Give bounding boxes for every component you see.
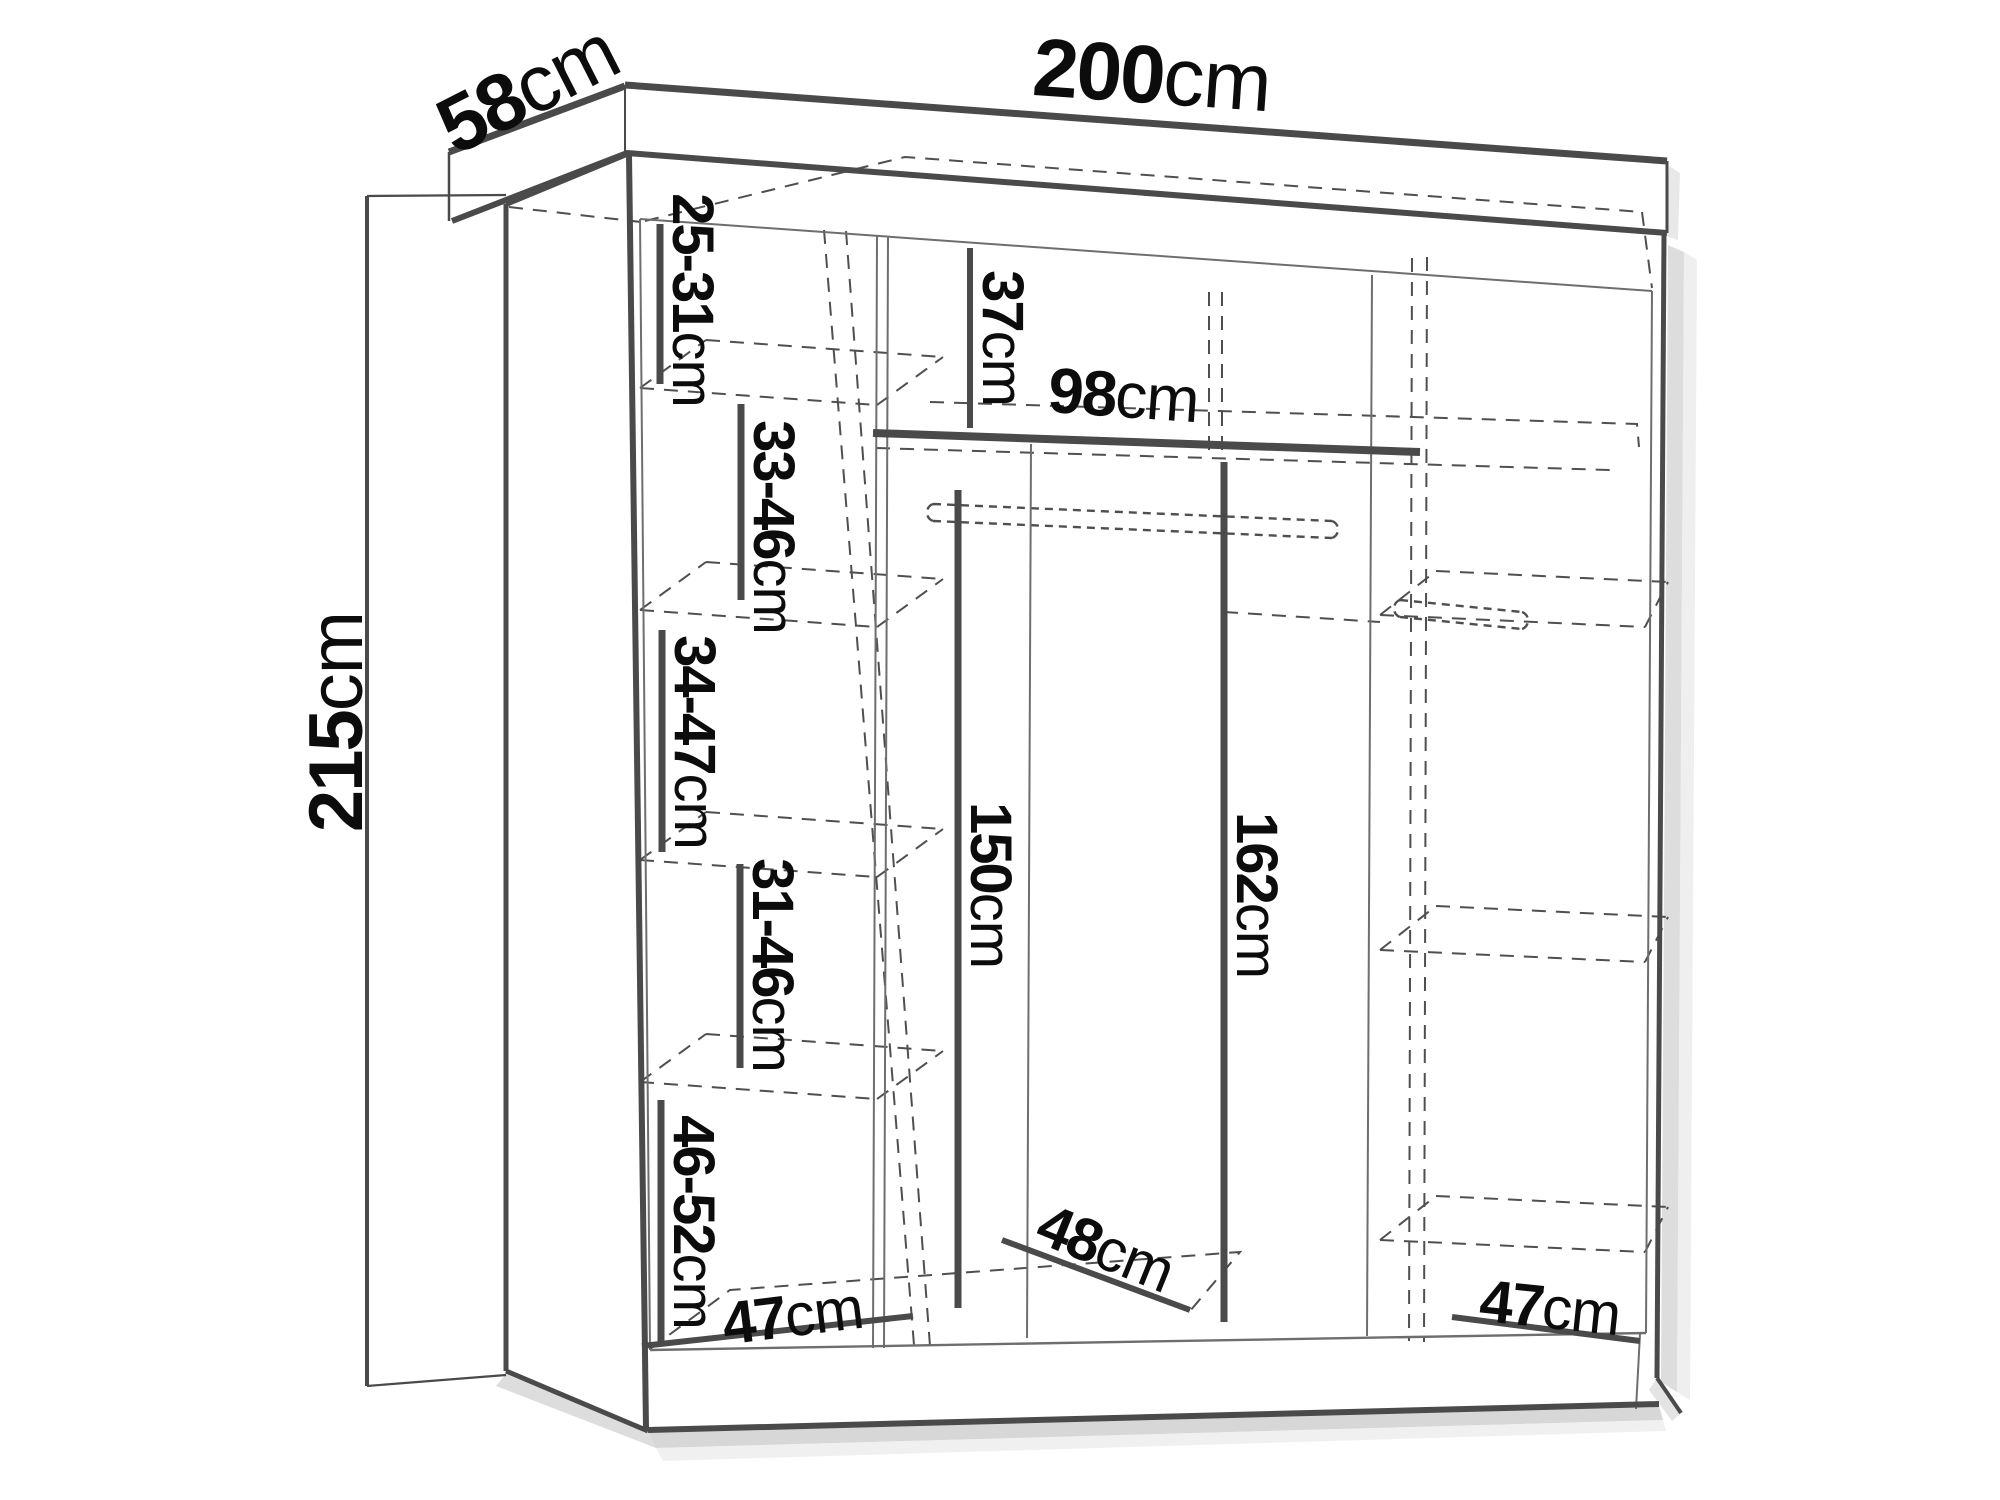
dim-left-gap-4-label: 31-46cm — [740, 858, 805, 1072]
dim-bottom-left-label: 47cm — [719, 1274, 867, 1358]
dim-hanging-middle-unit: cm — [958, 893, 1023, 968]
interior-top-edge — [640, 219, 1652, 291]
height-measure-ticks — [367, 195, 506, 1386]
dim-width-unit: cm — [1160, 31, 1273, 129]
dim-hanging-middle-label: 150cm — [958, 802, 1023, 968]
dim-left-gap-3-value: 34-47 — [662, 635, 727, 773]
dim-depth-label: 58cm — [423, 6, 632, 171]
right-shelf-extension-dashed — [1224, 612, 1380, 622]
dim-left-gap-1-value: 25-31 — [660, 193, 725, 332]
dim-shelf-width-value: 98 — [1046, 354, 1118, 431]
divider-right-front-edge — [1367, 275, 1372, 1336]
dim-hanging-right-value: 162 — [1224, 812, 1289, 903]
dim-left-gap-3-label: 34-47cm — [662, 635, 727, 849]
dim-left-gap-5-unit: cm — [661, 1254, 726, 1329]
dim-top-compartment-unit: cm — [970, 331, 1035, 406]
dim-width-label: 200cm — [1030, 22, 1274, 129]
dim-bottom-right-value: 47 — [1477, 1267, 1546, 1340]
hanging-rail-right-dashed — [1394, 600, 1528, 629]
dim-hanging-right-unit: cm — [1224, 903, 1289, 978]
middle-shelf-front-edge — [873, 433, 1420, 452]
hanging-rail-middle-dashed — [927, 504, 1338, 538]
dim-bottom-depth-label: 48cm — [1028, 1191, 1184, 1306]
dim-height-value: 215 — [294, 711, 379, 833]
right-divider-back-edges-dashed — [1409, 257, 1427, 1342]
dim-left-gap-2-label: 33-46cm — [741, 420, 806, 634]
side-panel-top-edge — [506, 153, 629, 204]
height-measure — [367, 195, 506, 1386]
dim-width-value: 200 — [1030, 22, 1167, 122]
dim-left-gap-4-unit: cm — [740, 997, 805, 1072]
middle-hidden-vertical-dashed — [1209, 292, 1222, 460]
dim-left-gap-2-unit: cm — [741, 559, 806, 634]
top-left-dashed-edge — [509, 207, 641, 222]
side-panel-bottom-edge — [506, 1371, 648, 1431]
interior-right-edge — [1646, 291, 1652, 1333]
wardrobe-diagram: 200cm 58cm 215cm 25-31cm 33-46cm 34-47cm… — [0, 0, 2000, 1500]
carcass-front-left-edge — [629, 155, 646, 1429]
dim-top-compartment-label: 37cm — [970, 270, 1035, 406]
dim-left-gap-5-value: 46-52 — [661, 1115, 726, 1253]
dim-top-compartment-value: 37 — [970, 270, 1035, 331]
dim-hanging-middle-value: 150 — [958, 802, 1023, 893]
dim-shelf-width-label: 98cm — [1046, 354, 1201, 436]
dim-bottom-right-unit: cm — [1539, 1273, 1624, 1348]
plinth-right-edge — [1636, 1334, 1640, 1409]
dim-left-gap-5-label: 46-52cm — [661, 1115, 726, 1329]
dim-bottom-left-unit: cm — [781, 1274, 867, 1350]
dim-height-label: 215cm — [294, 612, 379, 832]
dim-left-gap-1-unit: cm — [660, 332, 725, 407]
dim-left-gap-3-unit: cm — [662, 774, 727, 849]
dim-shelf-width-unit: cm — [1113, 359, 1201, 437]
right-shelves-dashed — [1380, 571, 1668, 1252]
dim-left-gap-4-value: 31-46 — [740, 858, 805, 997]
dim-left-gap-2-value: 33-46 — [741, 420, 806, 559]
wardrobe-diagram-page: 200cm 58cm 215cm 25-31cm 33-46cm 34-47cm… — [0, 0, 2000, 1500]
dim-left-gap-1-label: 25-31cm — [660, 193, 725, 407]
dim-height-unit: cm — [294, 612, 379, 711]
divider-middle-front-edge — [1027, 444, 1031, 1338]
shadow-bottom-left-wedge — [496, 1374, 656, 1448]
dim-hanging-right-label: 162cm — [1224, 812, 1289, 978]
dim-bottom-left-value: 47 — [719, 1283, 789, 1357]
